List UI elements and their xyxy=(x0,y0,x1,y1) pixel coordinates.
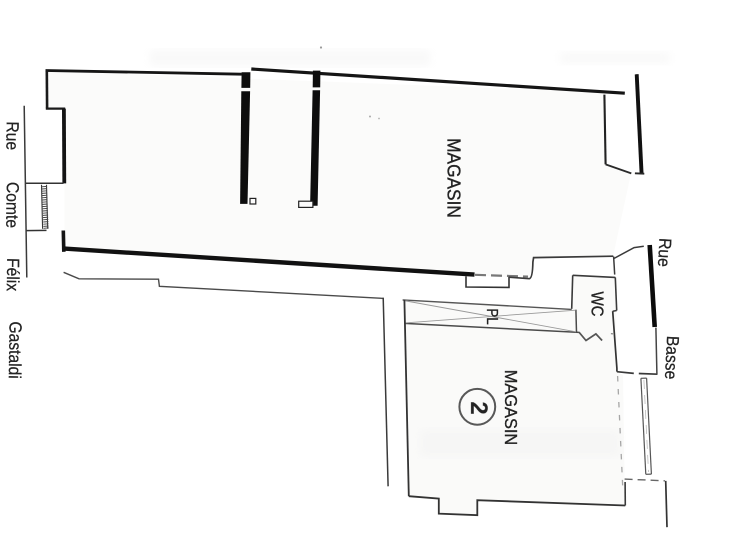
svg-text:Félix: Félix xyxy=(3,258,23,292)
svg-text:MAGASIN: MAGASIN xyxy=(501,370,522,445)
svg-text:Basse: Basse xyxy=(661,335,683,380)
svg-text:WC: WC xyxy=(587,291,606,316)
svg-text:Rue: Rue xyxy=(654,238,675,268)
svg-text:2: 2 xyxy=(465,401,492,414)
svg-text:Comte: Comte xyxy=(2,182,23,228)
svg-text:Rue: Rue xyxy=(2,121,22,150)
svg-text:PL: PL xyxy=(483,308,500,324)
svg-text:Gastaldi: Gastaldi xyxy=(5,321,26,379)
svg-text:MAGASIN: MAGASIN xyxy=(443,138,464,218)
